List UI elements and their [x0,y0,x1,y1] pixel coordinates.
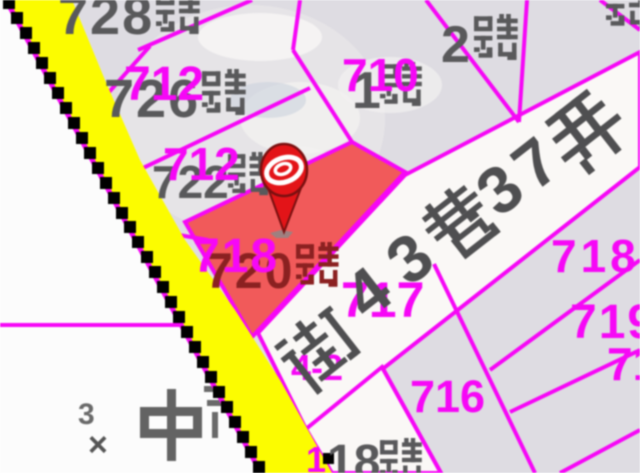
svg-text:712: 712 [124,58,204,111]
svg-text:712: 712 [163,138,240,190]
svg-text:1: 1 [306,439,326,473]
svg-text:718: 718 [551,230,640,282]
svg-text:718: 718 [193,230,279,283]
svg-text:18: 18 [327,436,380,473]
svg-text:×: × [88,426,108,464]
svg-text:710: 710 [342,49,419,101]
svg-text:728: 728 [58,0,154,46]
svg-text:716: 716 [410,371,485,422]
svg-text:71: 71 [607,338,640,390]
svg-text:2: 2 [441,16,470,74]
